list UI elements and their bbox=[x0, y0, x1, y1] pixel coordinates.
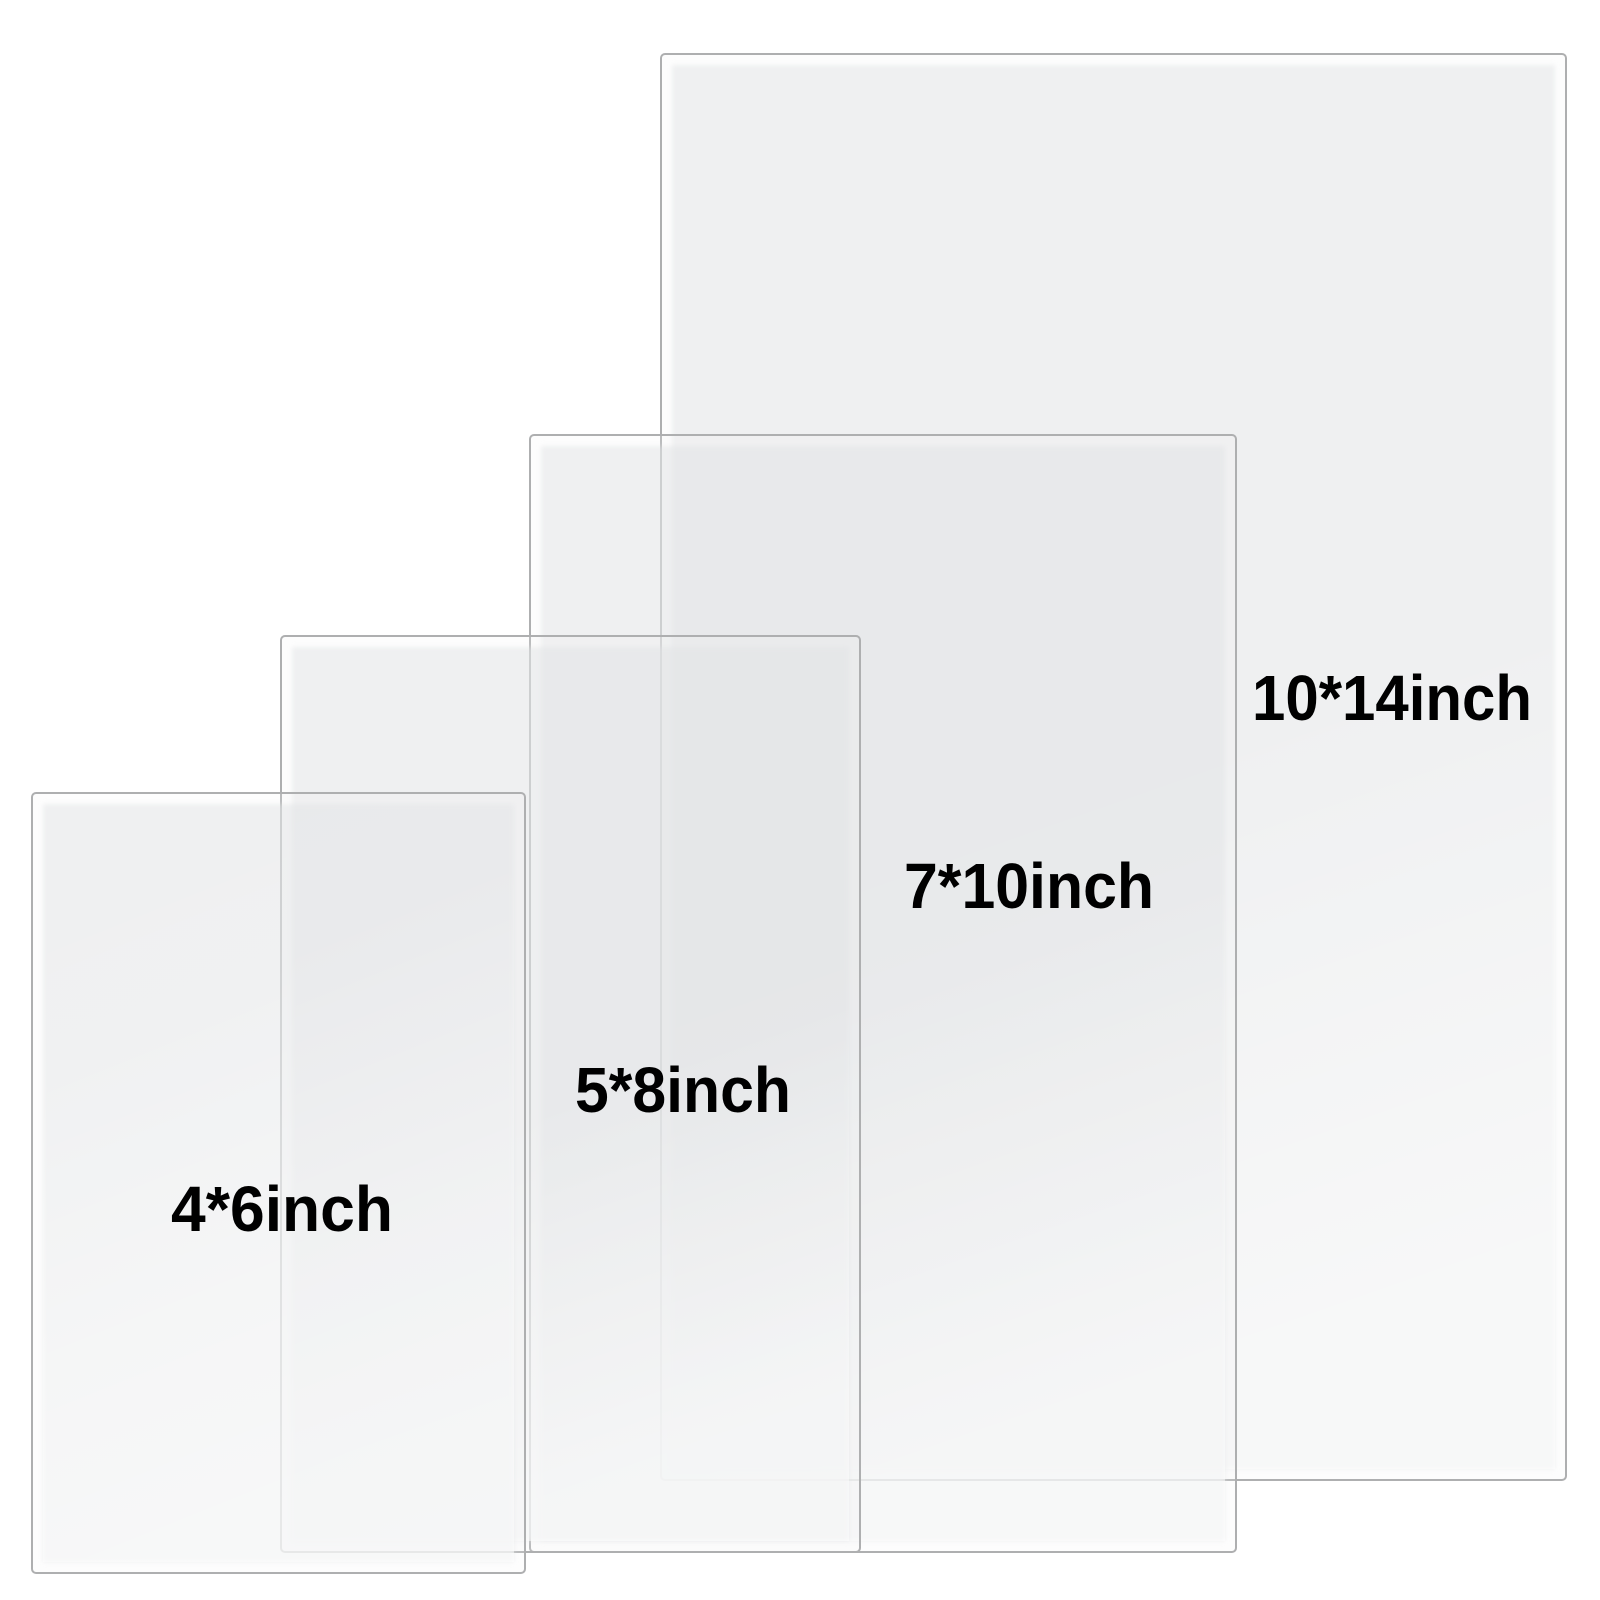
svg-text:10*14inch: 10*14inch bbox=[1252, 662, 1532, 734]
svg-text:7*10inch: 7*10inch bbox=[904, 850, 1154, 922]
svg-text:5*8inch: 5*8inch bbox=[575, 1054, 791, 1126]
svg-text:4*6inch: 4*6inch bbox=[171, 1173, 393, 1245]
